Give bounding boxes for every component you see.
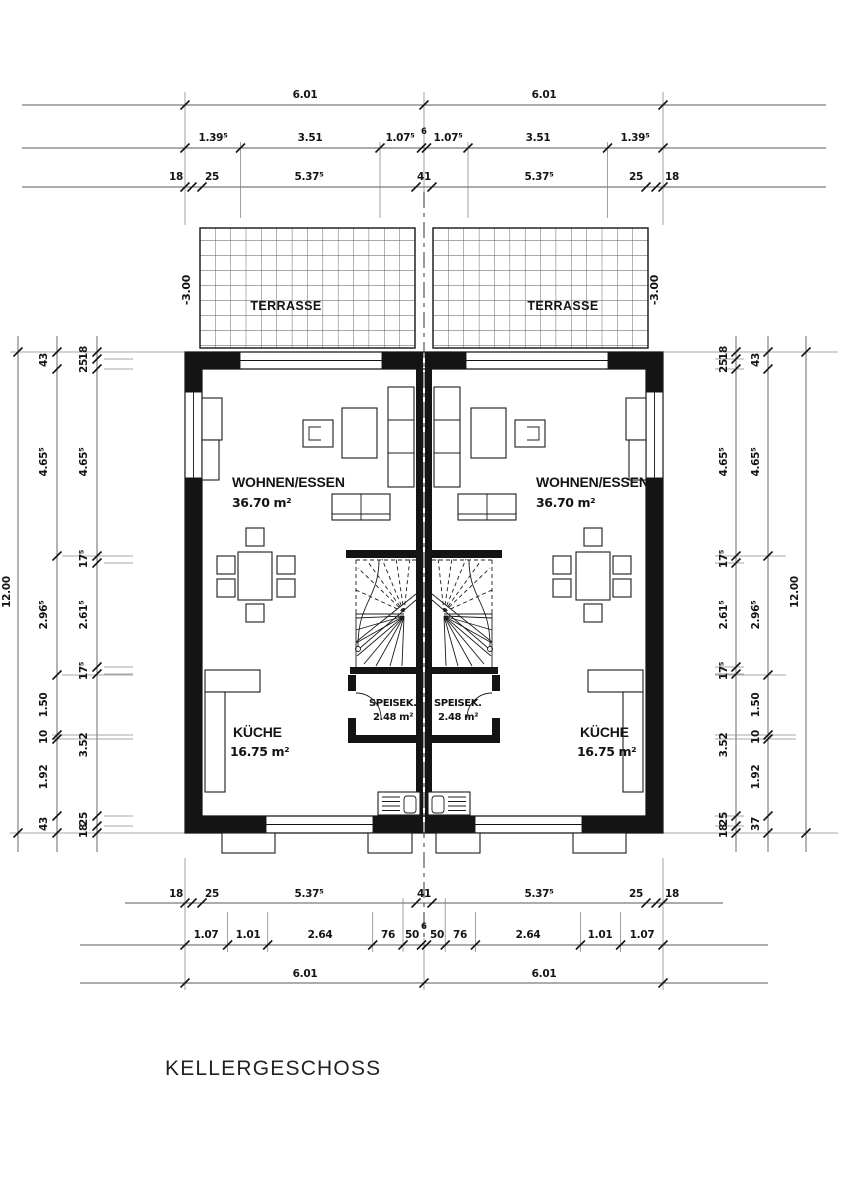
- dim-label: 12.00: [789, 576, 801, 608]
- dim-label: 18: [169, 888, 183, 900]
- dim-label: 4.65⁵: [38, 447, 50, 477]
- dim-label: 25: [78, 812, 90, 826]
- level-label-right: -3.00: [648, 274, 661, 305]
- dim-label: 76: [381, 929, 395, 941]
- dim-label: 43: [38, 817, 50, 831]
- drawing-title: KELLERGESCHOSS: [165, 1057, 381, 1080]
- dim-label: 2.61⁵: [718, 600, 730, 630]
- dim-label: 1.07: [630, 929, 655, 941]
- dim-label: 1.92: [38, 765, 50, 790]
- dim-label: 41: [417, 171, 431, 183]
- dim-label: 6.01: [293, 968, 318, 980]
- dim-label: 4.65⁵: [718, 447, 730, 477]
- dim-label: 25: [629, 888, 643, 900]
- dim-label: 18: [665, 888, 679, 900]
- dim-label: 18: [718, 824, 730, 838]
- dim-label: 6.01: [532, 968, 557, 980]
- dim-label: 17⁵: [718, 661, 730, 680]
- dim-label: 18: [718, 346, 730, 360]
- dim-label: 37: [750, 817, 762, 831]
- dim-label: 5.37⁵: [524, 171, 554, 183]
- dim-label: 1.50: [750, 693, 762, 718]
- dim-label: 5.37⁵: [294, 888, 324, 900]
- dim-label: 1.07: [194, 929, 219, 941]
- room-area-living-right: 36.70 m²: [536, 495, 595, 510]
- room-label-pantry-left: SPEISEK.: [369, 698, 416, 709]
- dim-label: 4.65⁵: [750, 447, 762, 477]
- room-area-kitchen-left: 16.75 m²: [230, 744, 289, 759]
- room-area-pantry-right: 2.48 m²: [438, 712, 478, 723]
- dim-label: 4.65⁵: [78, 447, 90, 477]
- dim-label: 5.37⁵: [294, 171, 324, 183]
- dim-label: 2.96⁵: [38, 600, 50, 630]
- room-label-living-right: WOHNEN/ESSEN: [536, 474, 649, 490]
- room-label-pantry-right: SPEISEK.: [434, 698, 481, 709]
- dim-label: 1.07⁵: [385, 132, 415, 144]
- dim-label: 17⁵: [718, 549, 730, 568]
- dim-label: 41: [417, 888, 431, 900]
- level-label-left: -3.00: [180, 274, 193, 305]
- dim-label: 1.39⁵: [620, 132, 650, 144]
- dim-label: 6: [421, 127, 427, 137]
- room-label-kitchen-right: KÜCHE: [580, 724, 629, 740]
- dim-label: 50: [430, 929, 444, 941]
- dim-label: 43: [750, 353, 762, 367]
- dim-label: 18: [665, 171, 679, 183]
- dim-label: 25: [629, 171, 643, 183]
- dim-label: 6.01: [293, 89, 318, 101]
- dim-label: 50: [405, 929, 419, 941]
- dim-label: 1.01: [236, 929, 261, 941]
- dim-label: 2.64: [308, 929, 333, 941]
- dim-label: 2.61⁵: [78, 600, 90, 630]
- dim-label: 76: [453, 929, 467, 941]
- dim-label: 3.51: [526, 132, 551, 144]
- left-unit: [185, 228, 424, 853]
- dim-label: 43: [38, 353, 50, 367]
- dim-label: 25: [718, 359, 730, 373]
- room-area-pantry-left: 2.48 m²: [373, 712, 413, 723]
- floor-plan-sheet: 6.01 6.01 1.39⁵ 3.51 1.07⁵ 6 1.07⁵ 3.51 …: [0, 0, 848, 1200]
- dim-label: 3.52: [718, 733, 730, 758]
- dim-label: 17⁵: [78, 549, 90, 568]
- dim-label: 12.00: [1, 576, 13, 608]
- dim-label: 1.39⁵: [198, 132, 228, 144]
- room-label-kitchen-left: KÜCHE: [233, 724, 282, 740]
- dim-label: 1.07⁵: [433, 132, 463, 144]
- dim-label: 25: [78, 359, 90, 373]
- dim-label: 3.52: [78, 733, 90, 758]
- dim-label: 18: [78, 824, 90, 838]
- dim-label: 3.51: [298, 132, 323, 144]
- dim-label: 1.92: [750, 765, 762, 790]
- right-unit: [424, 228, 663, 853]
- room-label-terrace-left: TERRASSE: [250, 299, 321, 313]
- dim-label: 1.50: [38, 693, 50, 718]
- room-label-living-left: WOHNEN/ESSEN: [232, 474, 345, 490]
- dim-label: 1.01: [588, 929, 613, 941]
- room-area-kitchen-right: 16.75 m²: [577, 744, 636, 759]
- dim-label: 6: [421, 922, 427, 932]
- dim-label: 6.01: [532, 89, 557, 101]
- room-area-living-left: 36.70 m²: [232, 495, 291, 510]
- floor-plan-svg: 6.01 6.01 1.39⁵ 3.51 1.07⁵ 6 1.07⁵ 3.51 …: [0, 0, 848, 1200]
- dim-label: 2.96⁵: [750, 600, 762, 630]
- dim-label: 2.64: [516, 929, 541, 941]
- dim-label: 25: [718, 812, 730, 826]
- dim-label: 17⁵: [78, 661, 90, 680]
- dim-label: 10: [38, 730, 50, 744]
- room-label-terrace-right: TERRASSE: [527, 299, 598, 313]
- dim-label: 10: [750, 730, 762, 744]
- dim-label: 25: [205, 888, 219, 900]
- dim-label: 25: [205, 171, 219, 183]
- dim-label: 18: [78, 346, 90, 360]
- dim-label: 5.37⁵: [524, 888, 554, 900]
- dim-label: 18: [169, 171, 183, 183]
